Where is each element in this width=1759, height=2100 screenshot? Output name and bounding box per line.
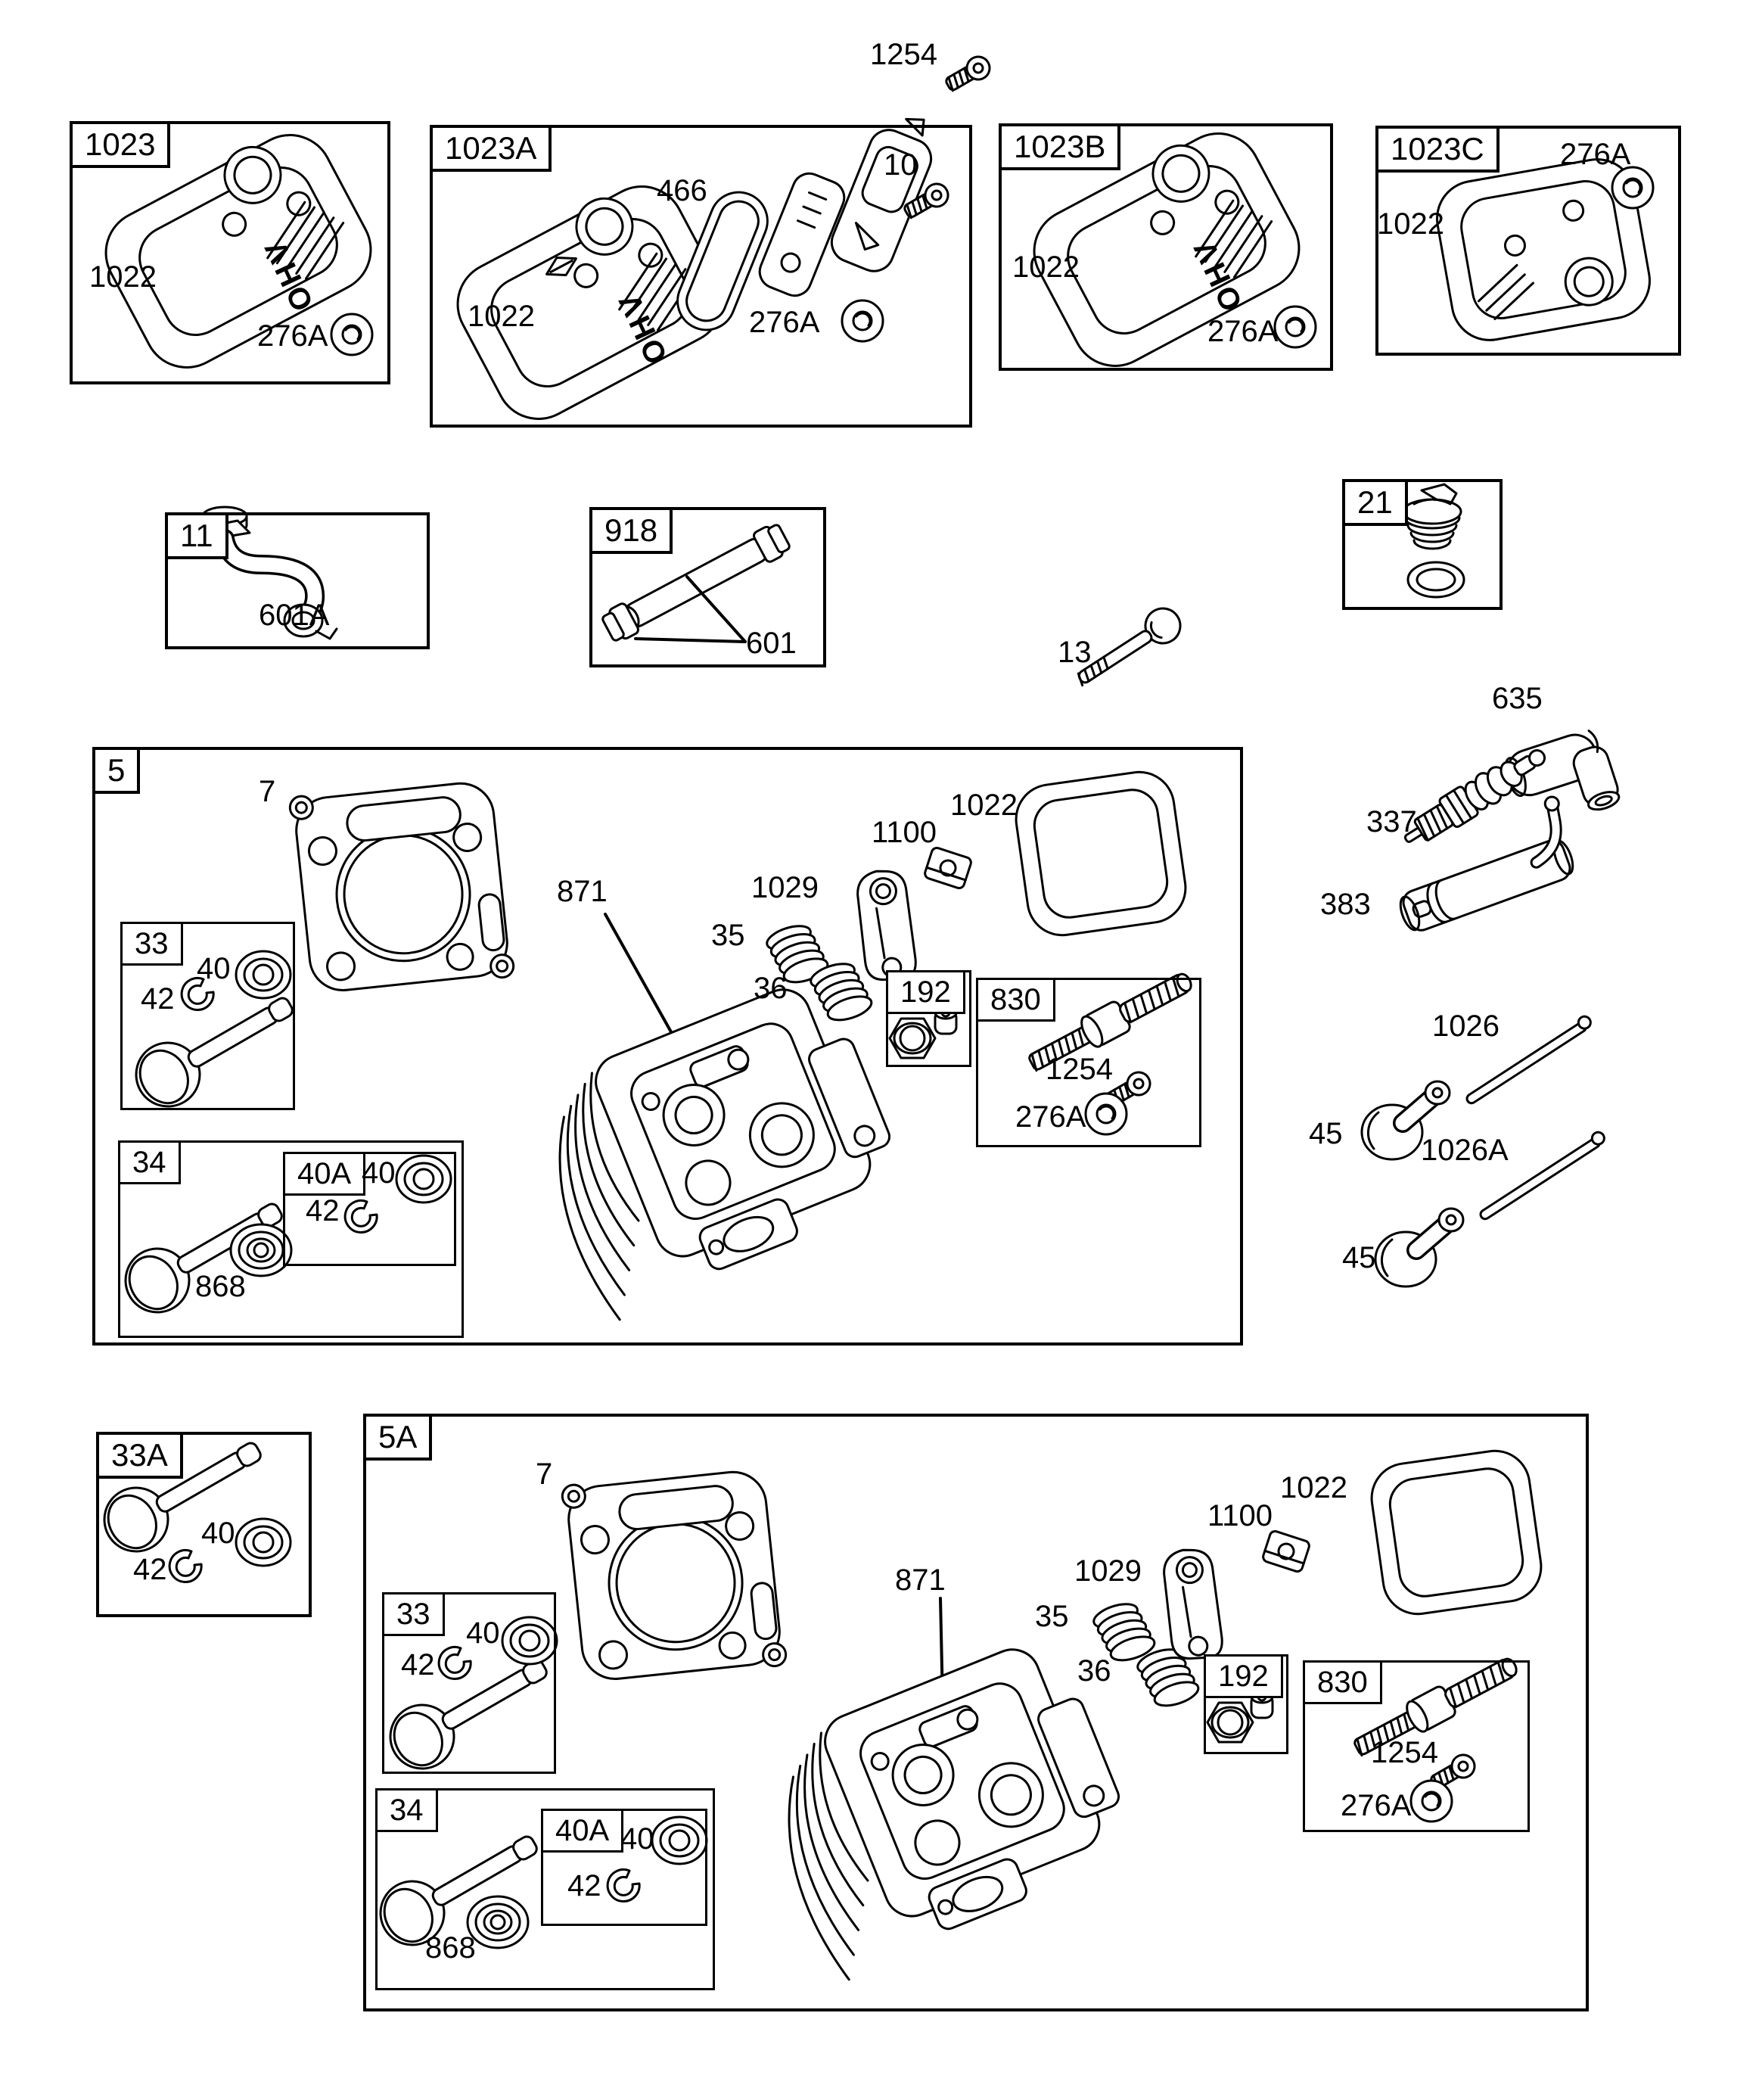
callout-871: 871 — [557, 876, 608, 907]
group-label-33: 33 — [120, 922, 183, 966]
callout-1022: 1022 — [1280, 1473, 1347, 1503]
screw-illustration — [943, 53, 994, 95]
group-label-40A: 40A — [541, 1809, 623, 1853]
group-label-21: 21 — [1342, 479, 1408, 526]
group-label-1023C: 1023C — [1375, 126, 1500, 173]
callout-35: 35 — [1035, 1601, 1069, 1632]
callout-40: 40 — [197, 954, 231, 984]
callout-7: 7 — [536, 1459, 552, 1489]
group-box-1023B: 1023B — [999, 123, 1333, 371]
group-box-1023: 1023 — [70, 121, 390, 384]
callout-276A: 276A — [257, 321, 328, 351]
callout-10: 10 — [884, 150, 918, 180]
group-label-192: 192 — [1204, 1654, 1283, 1698]
group-box-5A-192: 192 — [1204, 1654, 1288, 1754]
callout-635: 635 — [1492, 683, 1543, 714]
group-label-830: 830 — [976, 978, 1055, 1022]
group-label-33: 33 — [382, 1592, 445, 1636]
callout-1026A: 1026A — [1421, 1135, 1509, 1165]
group-label-192: 192 — [886, 970, 965, 1014]
group-label-5: 5 — [92, 747, 140, 794]
callout-42: 42 — [306, 1196, 340, 1226]
callout-40: 40 — [362, 1158, 396, 1188]
group-label-830: 830 — [1303, 1660, 1382, 1704]
callout-1026: 1026 — [1432, 1011, 1500, 1041]
callout-36: 36 — [754, 973, 788, 1003]
callout-36: 36 — [1077, 1656, 1111, 1686]
callout-45: 45 — [1309, 1118, 1343, 1149]
group-label-1023B: 1023B — [999, 123, 1120, 170]
group-box-1023C: 1023C — [1375, 126, 1681, 356]
group-box-21: 21 — [1342, 479, 1503, 610]
callout-1022: 1022 — [89, 262, 157, 292]
callout-868: 868 — [425, 1933, 476, 1963]
callout-1022: 1022 — [1012, 252, 1080, 282]
callout-1254: 1254 — [1371, 1738, 1438, 1768]
callout-1029: 1029 — [751, 873, 819, 903]
callout-383: 383 — [1320, 889, 1371, 919]
callout-871: 871 — [895, 1565, 946, 1595]
callout-7: 7 — [259, 776, 275, 807]
callout-40: 40 — [201, 1518, 235, 1548]
callout-276A: 276A — [1341, 1790, 1411, 1821]
callout-42: 42 — [401, 1650, 435, 1680]
callout-276A: 276A — [1015, 1102, 1086, 1132]
group-label-34: 34 — [375, 1788, 438, 1832]
callout-1022: 1022 — [468, 301, 535, 331]
callout-1022: 1022 — [950, 790, 1018, 820]
callout-466: 466 — [657, 176, 707, 206]
callout-1022: 1022 — [1377, 209, 1444, 239]
callout-42: 42 — [567, 1871, 601, 1901]
callout-1029: 1029 — [1074, 1556, 1142, 1586]
callout-35: 35 — [711, 920, 745, 950]
spark-plug-illustration — [1397, 740, 1552, 854]
callout-40: 40 — [466, 1618, 500, 1648]
group-label-1023A: 1023A — [430, 125, 552, 172]
group-label-918: 918 — [589, 507, 673, 554]
group-label-40A: 40A — [283, 1152, 365, 1196]
callout-1100: 1100 — [872, 817, 937, 848]
group-label-34: 34 — [118, 1140, 181, 1184]
callout-601A: 601A — [259, 600, 329, 630]
callout-337: 337 — [1366, 807, 1417, 837]
group-label-11: 11 — [165, 512, 228, 559]
callout-42: 42 — [141, 984, 175, 1014]
callout-1254: 1254 — [1046, 1054, 1113, 1084]
callout-40: 40 — [620, 1824, 654, 1854]
group-box-5-192: 192 — [886, 970, 971, 1067]
callout-13: 13 — [1058, 637, 1092, 667]
group-label-1023: 1023 — [70, 121, 170, 168]
callout-276A: 276A — [749, 307, 819, 338]
callout-1254-top: 1254 — [870, 39, 937, 70]
callout-276A: 276A — [1207, 316, 1278, 347]
callout-1100: 1100 — [1207, 1501, 1273, 1531]
group-label-5A: 5A — [363, 1414, 432, 1461]
group-label-33A: 33A — [96, 1432, 183, 1479]
group-box-5-33: 33 — [120, 922, 295, 1110]
callout-868: 868 — [195, 1271, 246, 1302]
callout-601: 601 — [746, 628, 797, 658]
callout-276A: 276A — [1560, 139, 1630, 170]
tappet-illustration — [1375, 1209, 1463, 1286]
callout-45: 45 — [1342, 1243, 1376, 1273]
callout-42: 42 — [133, 1554, 167, 1585]
